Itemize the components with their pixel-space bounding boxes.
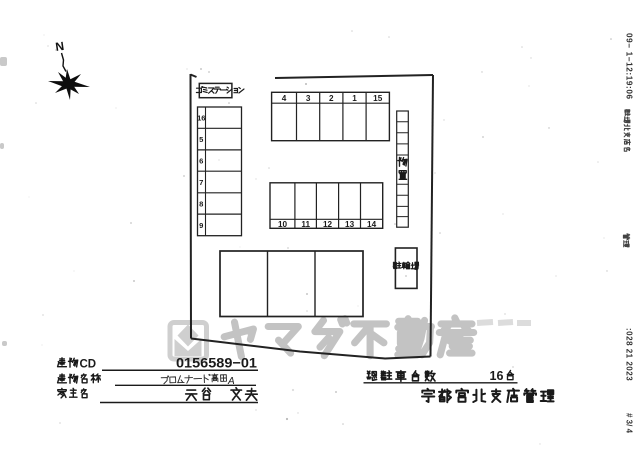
svg-text:5: 5: [199, 135, 204, 144]
svg-text:4: 4: [282, 94, 287, 103]
svg-text:12: 12: [323, 220, 333, 229]
svg-text:7: 7: [199, 178, 203, 187]
svg-text:9: 9: [199, 221, 203, 230]
svg-text:2: 2: [329, 94, 334, 103]
svg-text:0156589−01: 0156589−01: [176, 356, 257, 371]
svg-text:3: 3: [306, 94, 311, 103]
svg-text:15: 15: [373, 94, 383, 103]
svg-text:11: 11: [301, 220, 310, 229]
svg-text:14: 14: [367, 220, 377, 229]
svg-text:CD: CD: [80, 358, 97, 370]
svg-text:10: 10: [278, 220, 288, 229]
svg-text:N: N: [54, 39, 65, 54]
svg-text:# 3/ 4: # 3/ 4: [625, 413, 634, 434]
svg-text:1: 1: [352, 94, 357, 103]
svg-text:8: 8: [199, 199, 203, 208]
svg-text:09− 1−12:19:06: 09− 1−12:19:06: [625, 33, 634, 100]
svg-text:6: 6: [199, 157, 203, 166]
svg-text:16: 16: [197, 114, 205, 123]
svg-text:16: 16: [490, 369, 504, 383]
svg-text::028 21 2023: :028 21 2023: [625, 328, 634, 381]
svg-text:13: 13: [345, 220, 355, 229]
